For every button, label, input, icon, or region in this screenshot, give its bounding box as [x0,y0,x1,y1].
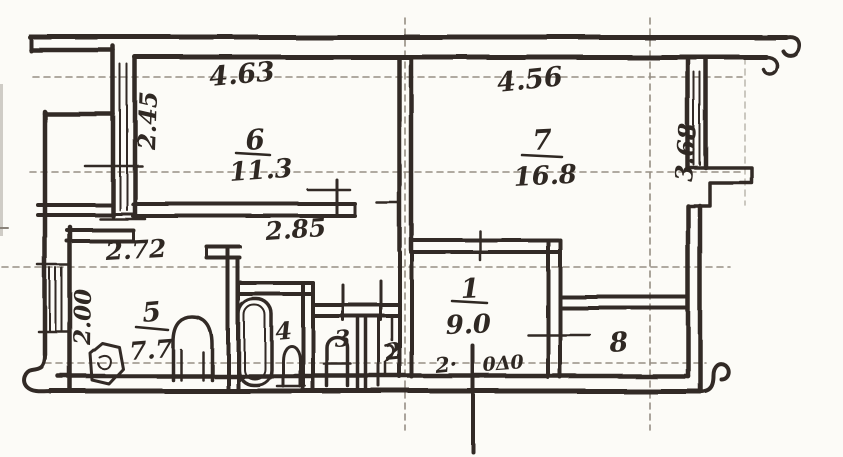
room1-number: 1 [460,273,480,305]
dim-room6-width: 4.63 [208,56,276,93]
floor-plan-canvas: 4.63 4.56 2.45 3.68 2.85 2.72 2.00 6 11.… [0,0,843,457]
room7-number: 7 [532,123,554,157]
dim-room7-depth: 3.68 [669,122,702,183]
room1-area: 9.0 [445,309,491,341]
room6-number: 6 [244,123,266,157]
scanned-floor-plan: 4.63 4.56 2.45 3.68 2.85 2.72 2.00 6 11.… [0,0,843,457]
room5-number: 5 [141,296,162,329]
room2-number: 2 [383,337,403,366]
room8-number: 8 [607,327,629,359]
scan-edge-artifact [0,84,3,236]
dim-hall-width: 2.85 [263,213,327,246]
dim-kitchen-width: 2.72 [104,234,167,266]
room4-number: 4 [274,316,293,346]
room7-area: 16.8 [513,160,578,193]
room3-number: 3 [334,325,352,353]
dim-room6-depth: 2.45 [132,91,163,151]
room5-area: 7.7 [128,334,174,366]
dim-kitchen-window: 2.00 [69,289,97,346]
entrance-note-right: 0Δ0 [482,351,525,376]
room6-area: 11.3 [228,154,293,188]
entrance-note-left: 2· [433,351,458,378]
